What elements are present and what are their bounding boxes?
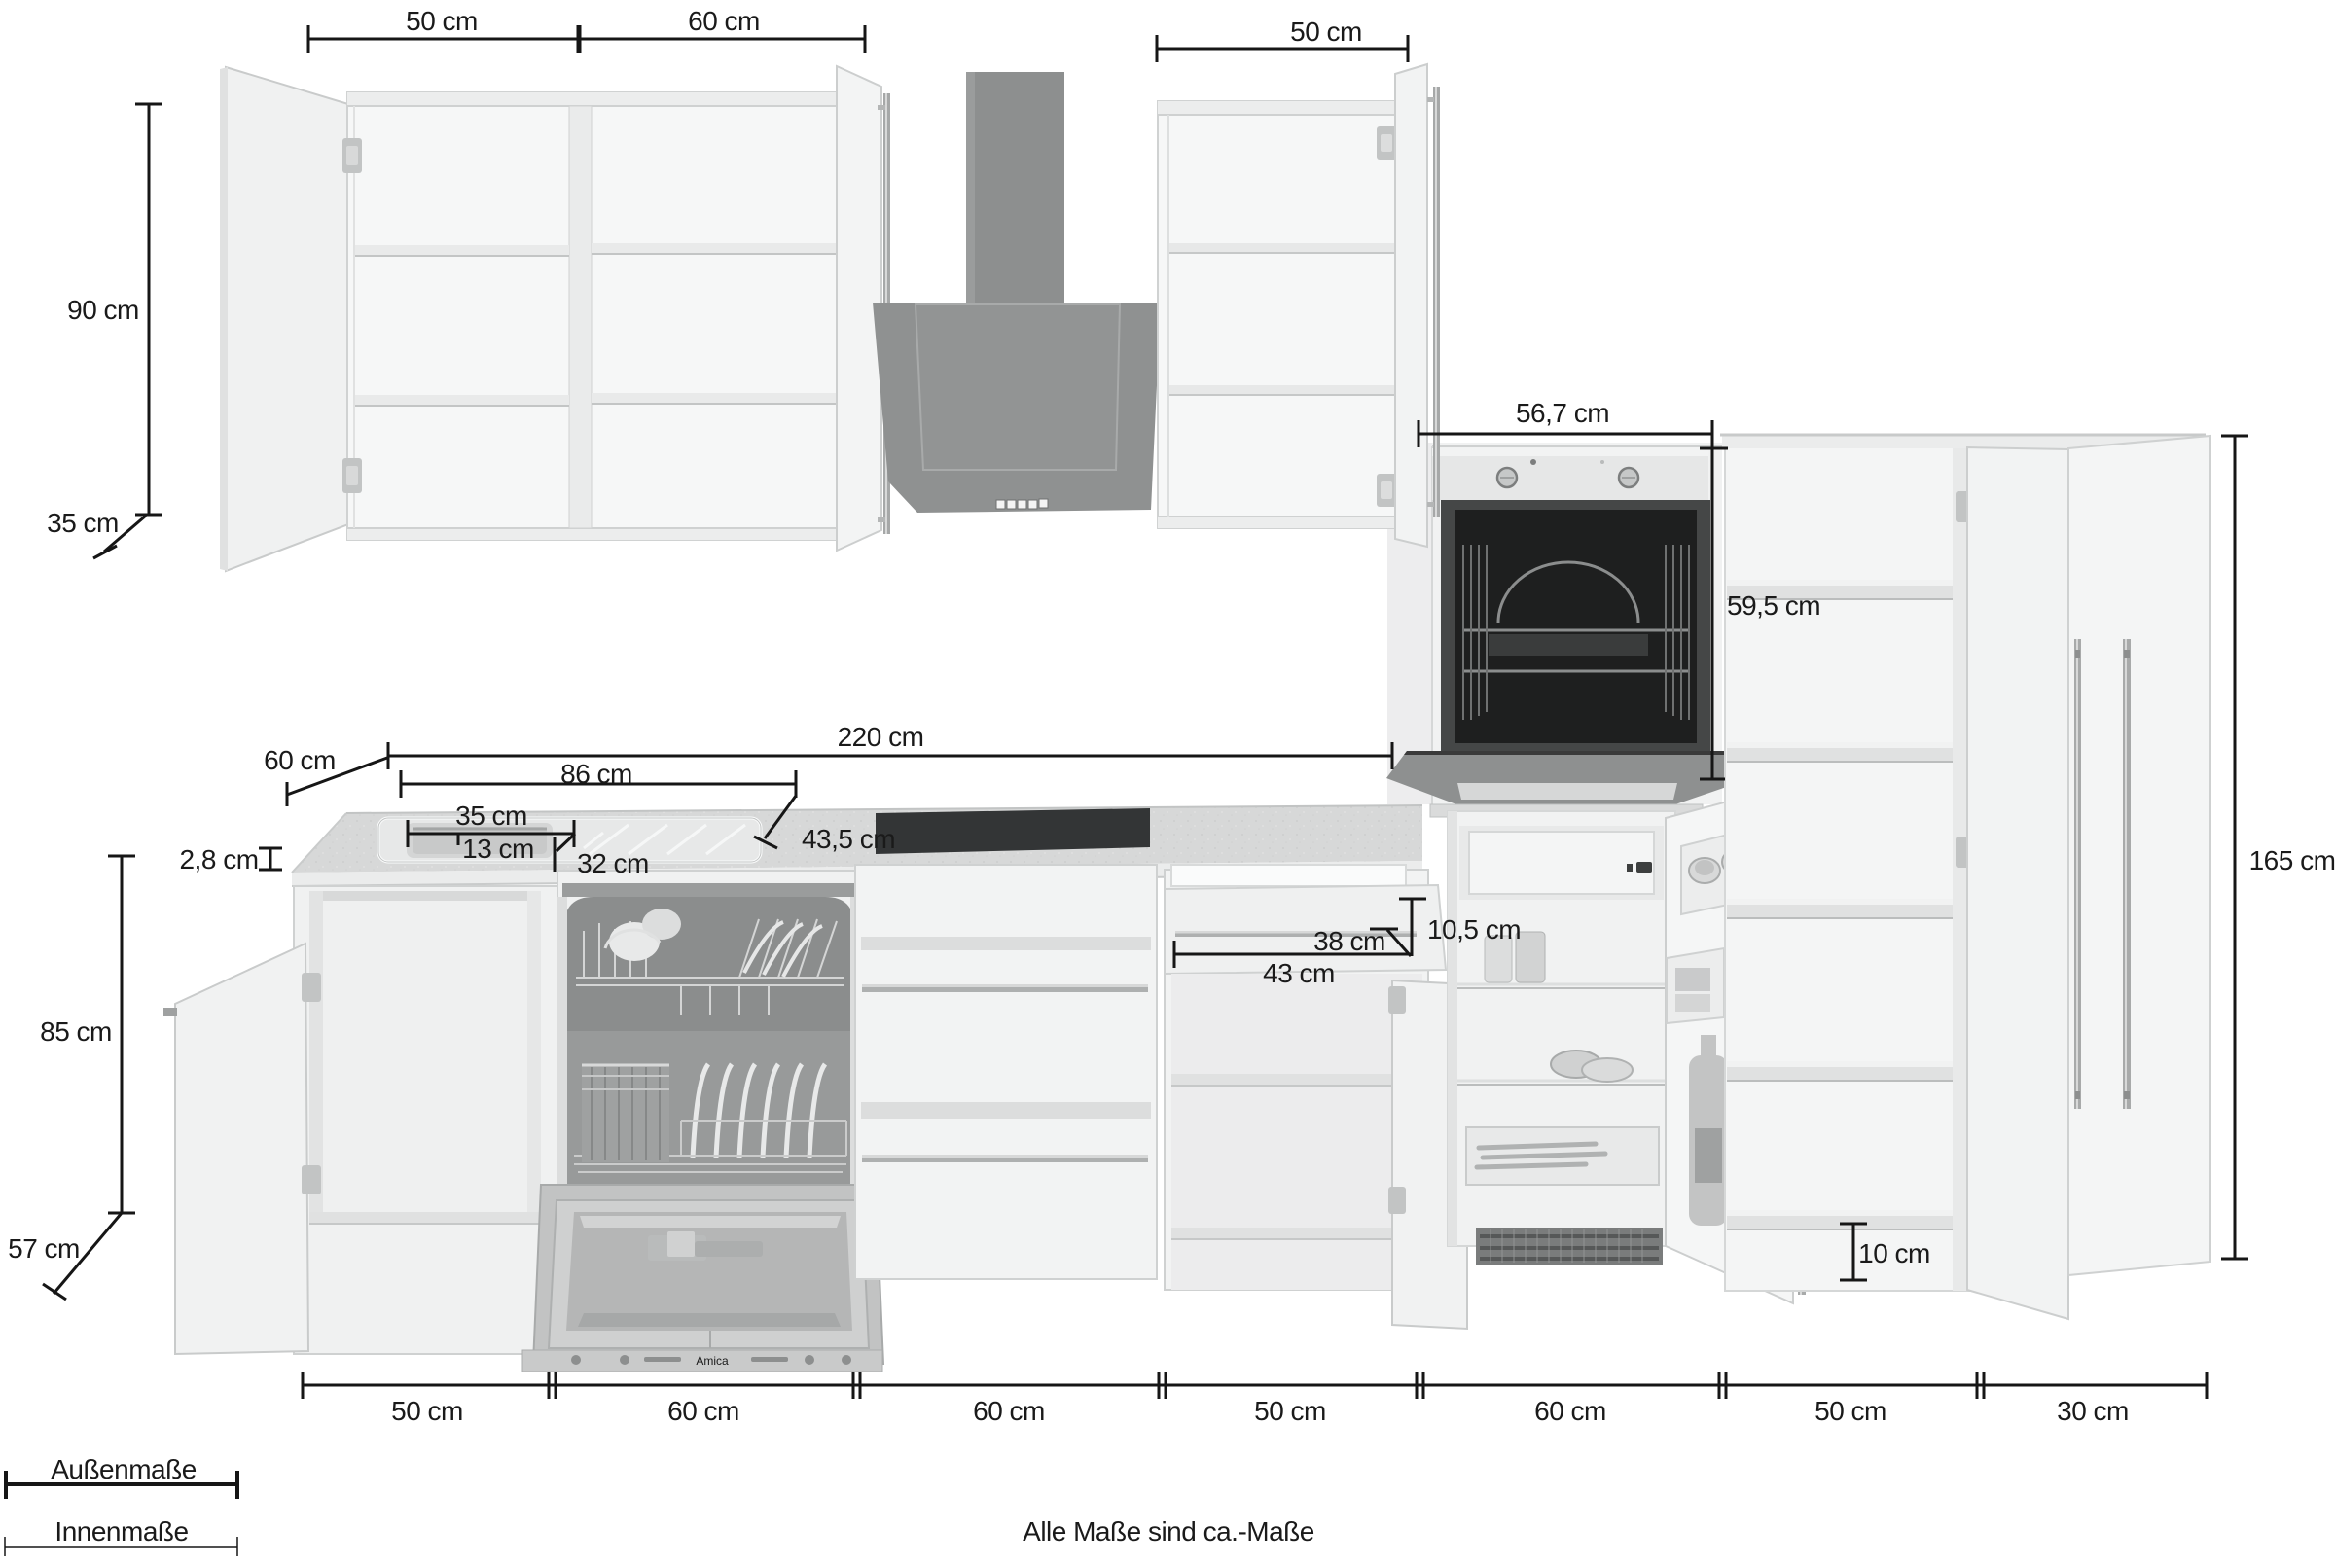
svg-text:50 cm: 50 cm xyxy=(1290,17,1362,47)
svg-text:50 cm: 50 cm xyxy=(1254,1396,1326,1426)
svg-text:60 cm: 60 cm xyxy=(1534,1396,1606,1426)
svg-text:43 cm: 43 cm xyxy=(1263,958,1335,988)
svg-text:Außenmaße: Außenmaße xyxy=(51,1454,197,1484)
svg-text:90 cm: 90 cm xyxy=(67,295,139,325)
svg-text:2,8 cm: 2,8 cm xyxy=(179,844,258,874)
svg-text:10 cm: 10 cm xyxy=(1858,1238,1930,1268)
svg-text:60 cm: 60 cm xyxy=(264,745,336,775)
svg-text:13 cm: 13 cm xyxy=(462,834,534,864)
svg-text:86 cm: 86 cm xyxy=(560,759,632,789)
svg-text:57 cm: 57 cm xyxy=(8,1233,80,1264)
svg-text:220 cm: 220 cm xyxy=(838,722,924,752)
svg-text:38 cm: 38 cm xyxy=(1313,926,1385,956)
svg-text:Alle Maße sind ca.-Maße: Alle Maße sind ca.-Maße xyxy=(1023,1516,1314,1547)
svg-text:10,5 cm: 10,5 cm xyxy=(1427,914,1521,944)
svg-text:50 cm: 50 cm xyxy=(391,1396,463,1426)
svg-text:50 cm: 50 cm xyxy=(406,6,478,36)
svg-text:60 cm: 60 cm xyxy=(688,6,760,36)
svg-text:165 cm: 165 cm xyxy=(2249,845,2335,875)
svg-text:60 cm: 60 cm xyxy=(667,1396,739,1426)
svg-text:Amica: Amica xyxy=(696,1354,729,1368)
svg-text:56,7 cm: 56,7 cm xyxy=(1516,398,1609,428)
svg-text:60 cm: 60 cm xyxy=(973,1396,1045,1426)
svg-text:50 cm: 50 cm xyxy=(1814,1396,1886,1426)
svg-text:85 cm: 85 cm xyxy=(40,1016,112,1047)
svg-text:35 cm: 35 cm xyxy=(455,801,527,831)
svg-text:30 cm: 30 cm xyxy=(2057,1396,2129,1426)
svg-text:59,5 cm: 59,5 cm xyxy=(1727,590,1820,621)
svg-text:Innenmaße: Innenmaße xyxy=(54,1516,188,1547)
svg-text:43,5 cm: 43,5 cm xyxy=(802,824,895,854)
svg-text:32 cm: 32 cm xyxy=(577,848,649,878)
svg-text:35 cm: 35 cm xyxy=(47,508,119,538)
